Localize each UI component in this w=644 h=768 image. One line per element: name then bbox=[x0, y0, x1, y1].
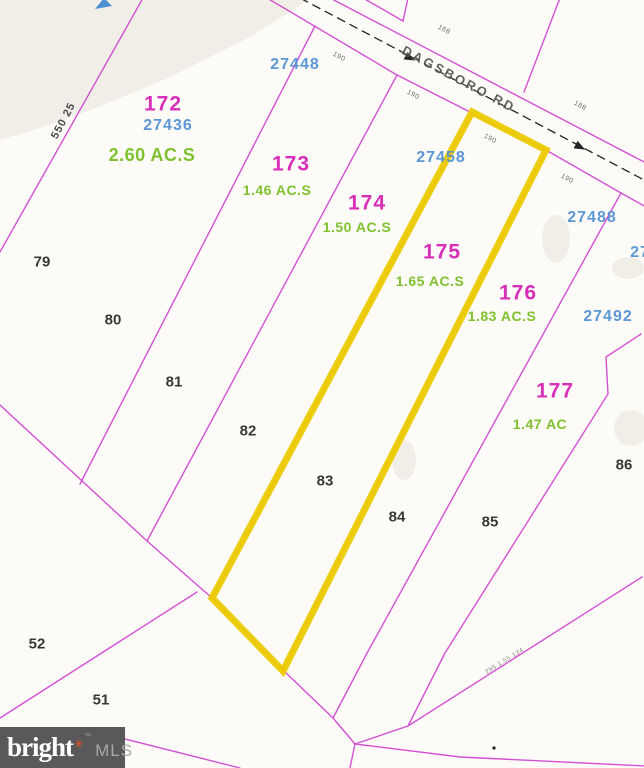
lot-83: 83 bbox=[317, 474, 334, 489]
parcel-id-173: 173 bbox=[272, 154, 310, 175]
parcel-id-176: 176 bbox=[499, 283, 537, 304]
acreage-173: 1.46 AC.S bbox=[243, 183, 312, 197]
lot-81: 81 bbox=[166, 375, 183, 390]
label-layer: 550 25172274362.60 AC.S274481731.46 AC.S… bbox=[0, 0, 644, 768]
apn-27492: 27492 bbox=[583, 309, 633, 325]
parcel-id-172: 172 bbox=[144, 94, 182, 115]
lot-80: 80 bbox=[105, 313, 122, 328]
lot-84: 84 bbox=[389, 510, 406, 525]
lot-85: 85 bbox=[482, 515, 499, 530]
acreage-174: 1.50 AC.S bbox=[323, 220, 392, 234]
apn-27448: 27448 bbox=[270, 57, 320, 73]
road-dim-188: 188 bbox=[573, 100, 588, 112]
brightmls-trademark: ™ bbox=[84, 733, 91, 740]
road-dim-190-a: 190 bbox=[332, 51, 347, 63]
lot-86: 86 bbox=[616, 458, 633, 473]
survey-dim-550-25: 550 25 bbox=[50, 101, 78, 141]
deed-reference: 295 1.55 134 bbox=[485, 648, 526, 677]
road-dim-190-d: 190 bbox=[560, 173, 575, 185]
acreage-176: 1.83 AC.S bbox=[468, 309, 537, 323]
apn-27488: 27488 bbox=[567, 210, 617, 226]
parcel-id-177: 177 bbox=[536, 381, 574, 402]
apn-27436: 27436 bbox=[143, 118, 193, 134]
brightmls-mls-text: MLS bbox=[95, 730, 133, 768]
acreage-175: 1.65 AC.S bbox=[396, 274, 465, 288]
brightmls-star-icon: ✳ bbox=[74, 737, 84, 751]
lot-79: 79 bbox=[34, 255, 51, 270]
apn-274xx-clipped: 27 bbox=[630, 245, 644, 261]
road-dim-190-b: 190 bbox=[406, 89, 421, 101]
acreage-177: 1.47 AC bbox=[513, 417, 567, 431]
parcel-id-175: 175 bbox=[423, 242, 461, 263]
road-dim-168: 168 bbox=[437, 24, 452, 36]
brightmls-watermark: bright ✳ ™ MLS bbox=[0, 727, 125, 768]
parcel-id-174: 174 bbox=[348, 193, 386, 214]
apn-27458: 27458 bbox=[416, 150, 466, 166]
acreage-172: 2.60 AC.S bbox=[109, 146, 196, 164]
road-name-label: DAGSBORO RD bbox=[400, 44, 518, 115]
lot-51: 51 bbox=[93, 693, 110, 708]
lot-82: 82 bbox=[240, 424, 257, 439]
lot-52: 52 bbox=[29, 637, 46, 652]
plat-map-screenshot: 550 25172274362.60 AC.S274481731.46 AC.S… bbox=[0, 0, 644, 768]
road-dim-190-c: 190 bbox=[483, 133, 498, 145]
brightmls-brand-text: bright bbox=[7, 727, 73, 768]
